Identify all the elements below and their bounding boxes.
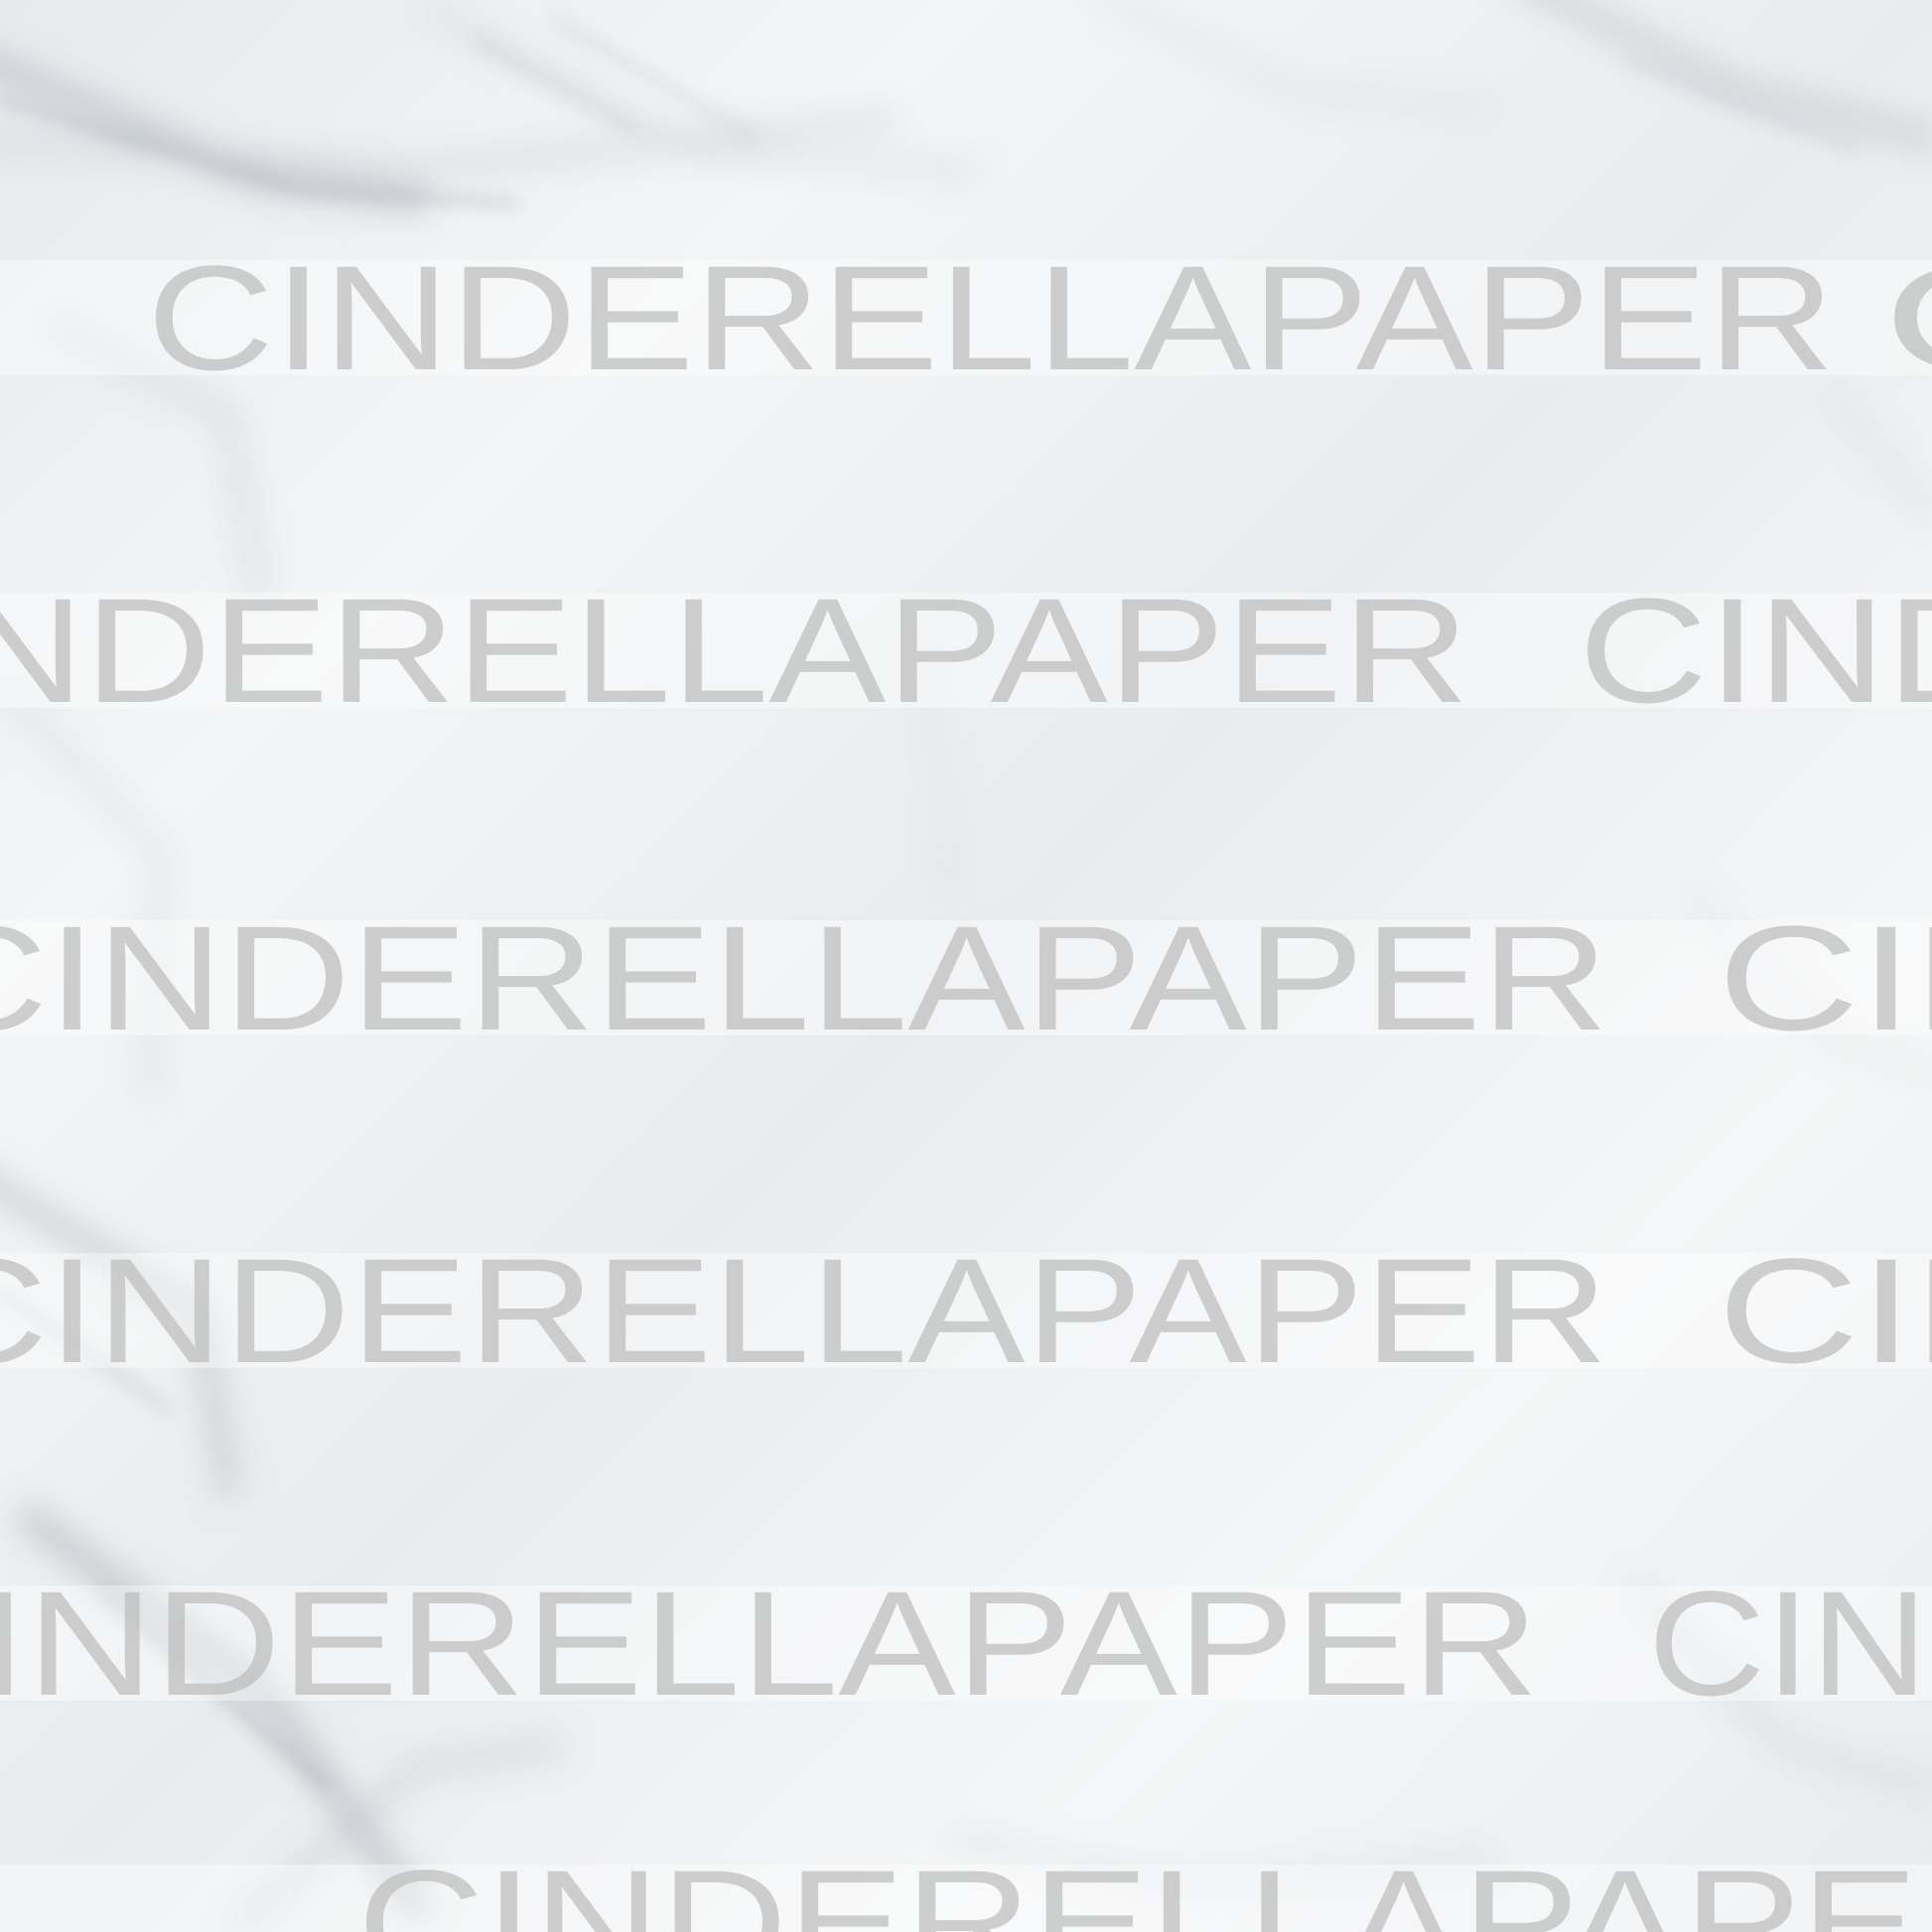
svg-text:CIN: CIN: [1718, 895, 1932, 1061]
svg-text:CI: CI: [1882, 234, 1932, 401]
svg-text:CINDERELLAPAPER: CINDERELLAPAPER: [0, 1560, 1539, 1726]
svg-text:CIND: CIND: [1648, 1560, 1932, 1726]
svg-text:CINDERELLAPAPER: CINDERELLAPAPER: [0, 567, 1469, 734]
svg-text:CIN: CIN: [1718, 1227, 1932, 1394]
svg-text:CINDERELLAPAPER: CINDERELLAPAPER: [357, 1839, 1932, 1932]
svg-text:CINDERELLAPAPER: CINDERELLAPAPER: [0, 1227, 1608, 1394]
svg-text:CINDERELLAPAPER: CINDERELLAPAPER: [0, 895, 1608, 1061]
svg-text:CINDERELLAPAPER: CINDERELLAPAPER: [147, 234, 1835, 401]
svg-text:CINDE: CINDE: [1579, 567, 1932, 734]
